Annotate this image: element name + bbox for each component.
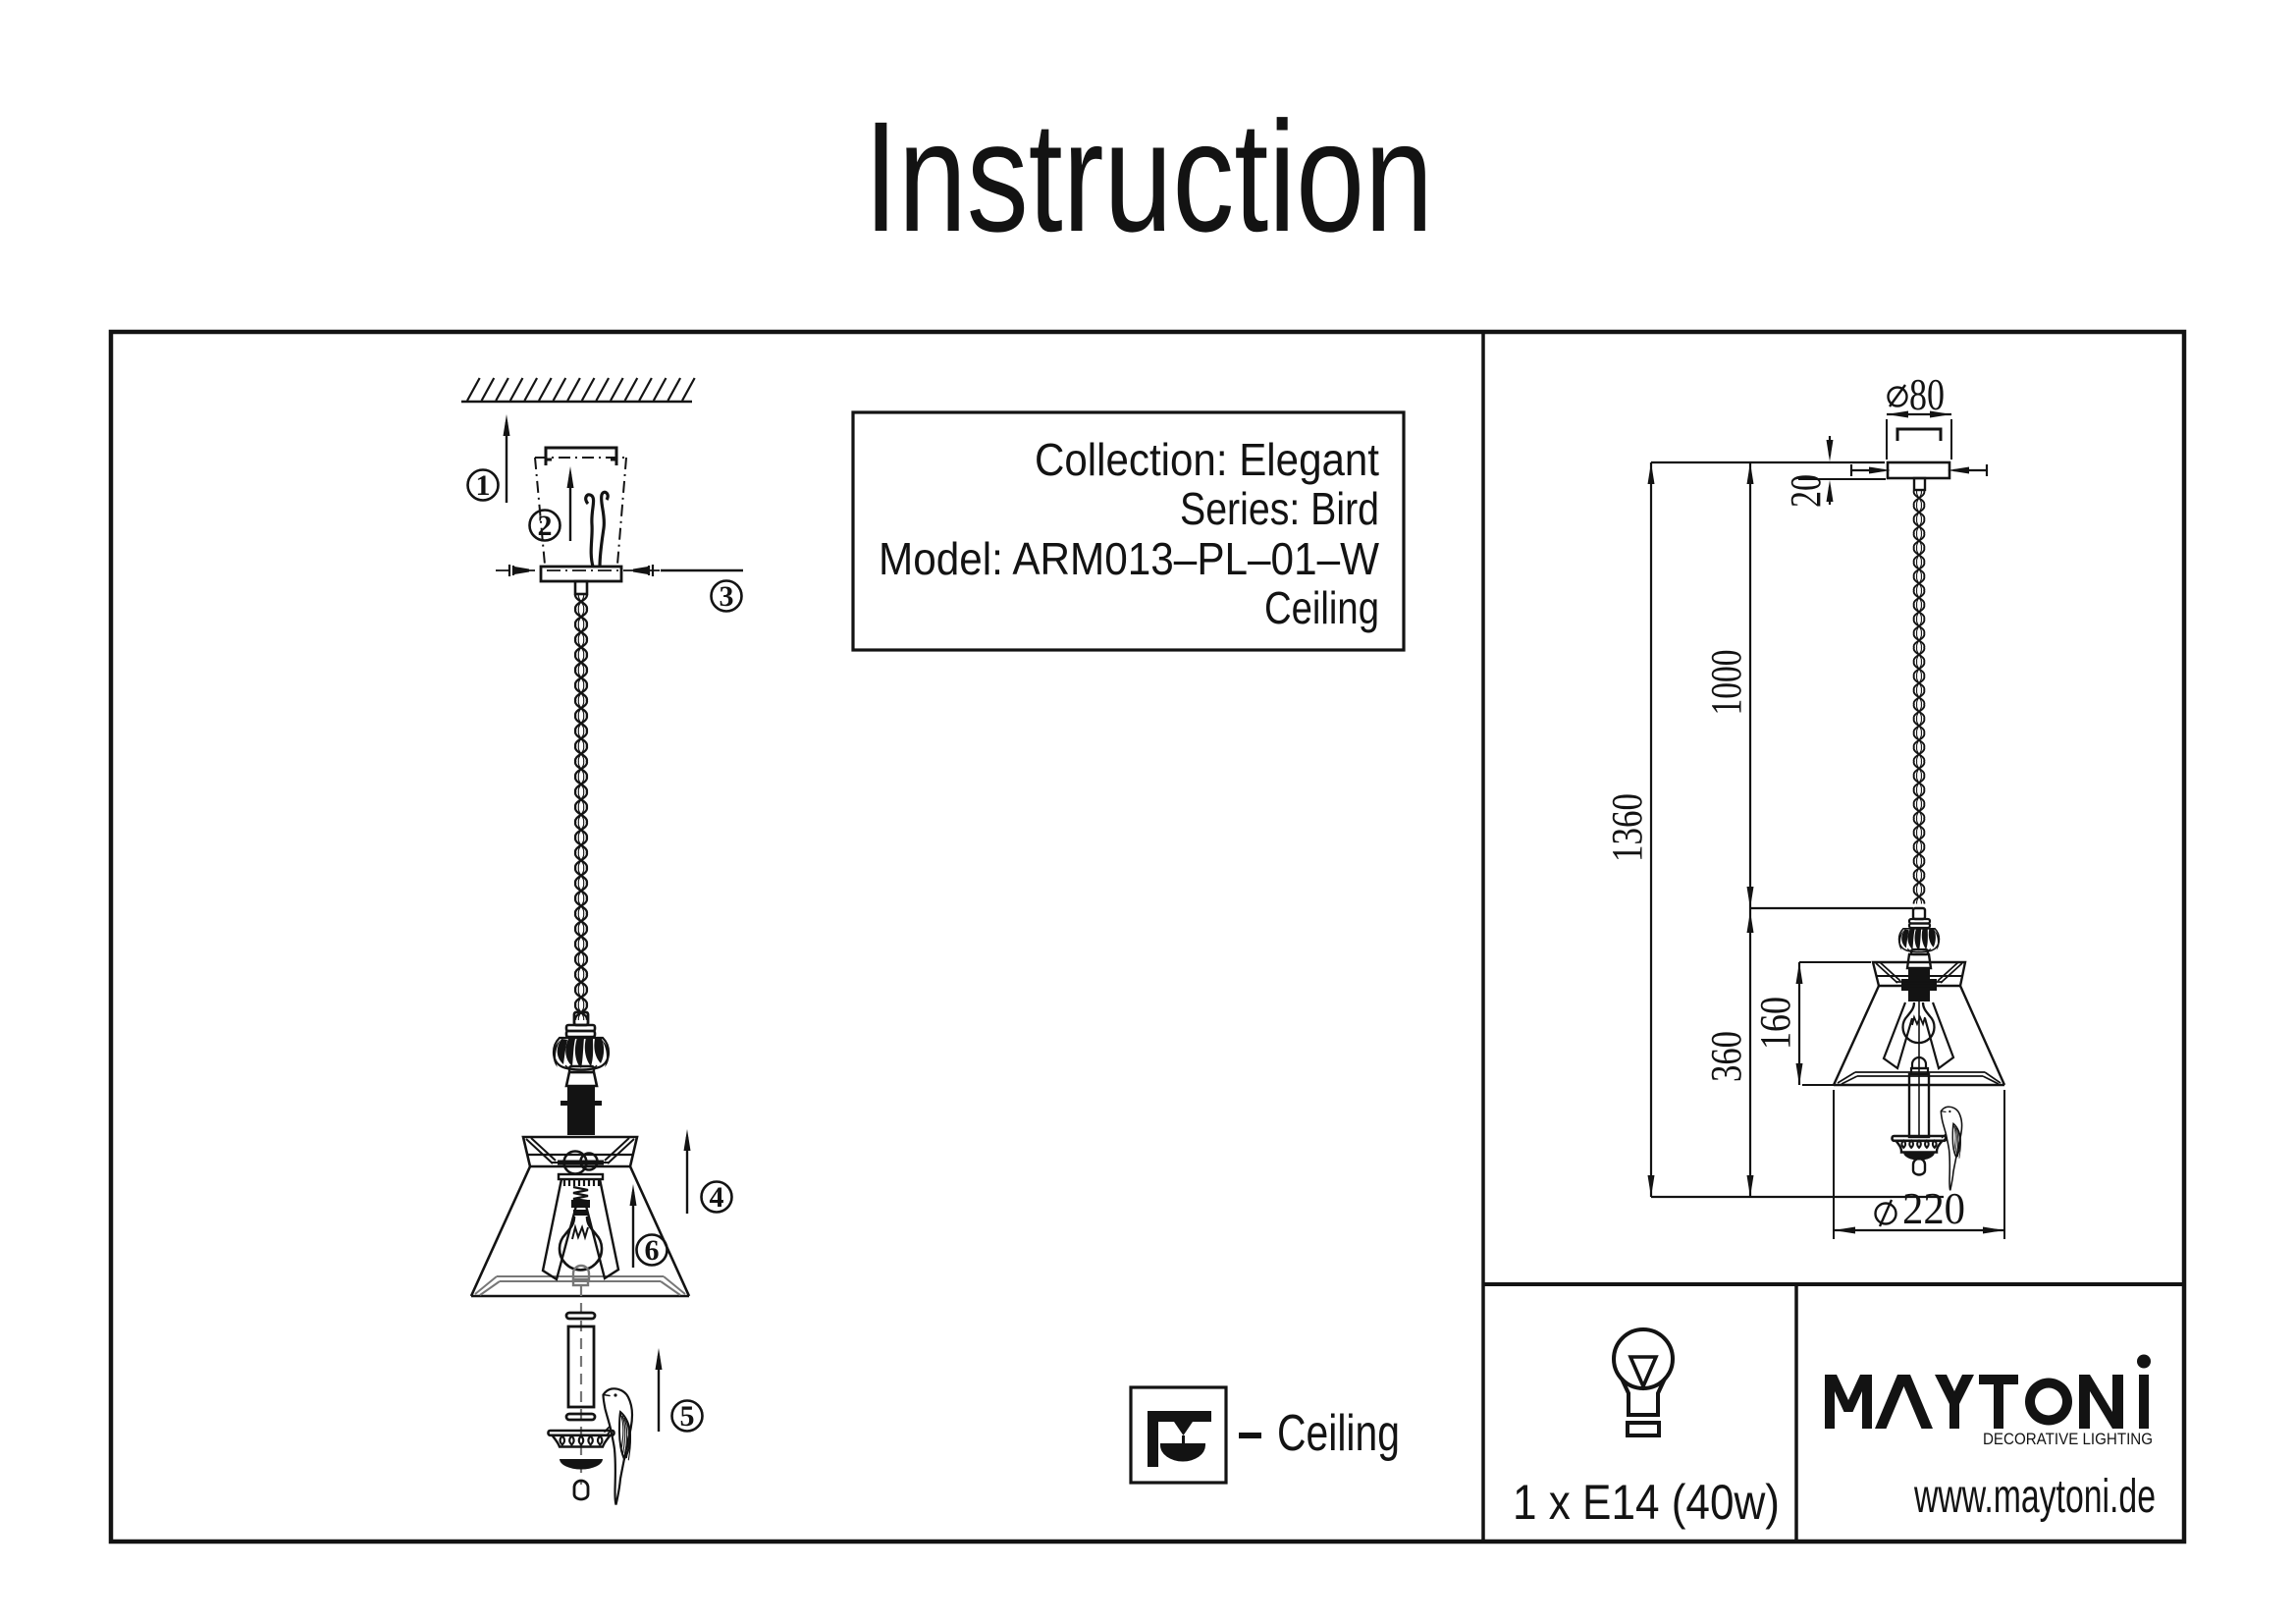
svg-text:Model: ARM013–PL–01–W: Model: ARM013–PL–01–W	[879, 533, 1380, 584]
svg-text:1360: 1360	[1603, 793, 1651, 862]
svg-text:80: 80	[1909, 369, 1945, 419]
svg-text:3: 3	[720, 580, 734, 613]
svg-text:6: 6	[645, 1234, 660, 1267]
svg-text:1000: 1000	[1702, 650, 1750, 716]
svg-text:2: 2	[538, 510, 553, 542]
svg-text:DECORATIVE LIGHTING: DECORATIVE LIGHTING	[1983, 1430, 2153, 1448]
svg-text:Ceiling: Ceiling	[1277, 1405, 1400, 1462]
svg-text:1: 1	[476, 469, 491, 502]
svg-text:20: 20	[1782, 474, 1830, 508]
svg-text:220: 220	[1902, 1183, 1965, 1233]
svg-text:Series: Bird: Series: Bird	[1180, 483, 1379, 534]
svg-text:Ceiling: Ceiling	[1264, 582, 1379, 633]
svg-text:Instruction: Instruction	[864, 88, 1433, 264]
svg-text:4: 4	[710, 1181, 724, 1214]
svg-text:1 x E14 (40w): 1 x E14 (40w)	[1513, 1475, 1780, 1530]
svg-text:www.maytoni.de: www.maytoni.de	[1913, 1471, 2156, 1523]
svg-text:160: 160	[1751, 997, 1799, 1050]
svg-text:5: 5	[680, 1400, 695, 1433]
svg-text:360: 360	[1702, 1031, 1750, 1082]
svg-text:Collection: Elegant: Collection: Elegant	[1035, 434, 1379, 485]
